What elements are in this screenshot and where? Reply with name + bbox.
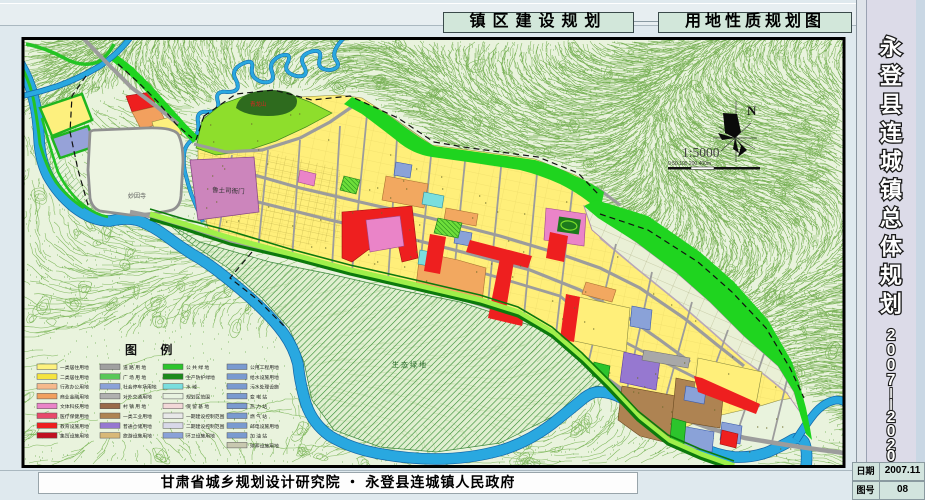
svg-text:妙因寺: 妙因寺 — [128, 192, 146, 200]
svg-text:图 例: 图 例 — [125, 342, 182, 357]
svg-text:热 力 站: 热 力 站 — [250, 403, 267, 410]
svg-text:青龙山: 青龙山 — [250, 100, 267, 108]
svg-text:集贸设施用地: 集贸设施用地 — [60, 433, 89, 440]
svg-text:变 电 站: 变 电 站 — [250, 393, 267, 400]
svg-text:二类居住用地: 二类居住用地 — [60, 374, 89, 381]
svg-text:普通仓储用地: 普通仓储用地 — [123, 423, 152, 430]
svg-text:连: 连 — [880, 121, 903, 146]
svg-text:道 路 用 地: 道 路 用 地 — [123, 364, 146, 371]
svg-text:加 油 站: 加 油 站 — [250, 433, 267, 440]
svg-text:广 场 用 地: 广 场 用 地 — [123, 374, 146, 381]
svg-text:公 共 绿 地: 公 共 绿 地 — [186, 364, 209, 371]
svg-text:0 50 100 200: 0 50 100 200 400m — [668, 161, 711, 167]
svg-text:N: N — [747, 103, 757, 118]
svg-text:殡葬设施用地: 殡葬设施用地 — [250, 442, 279, 449]
svg-text:城: 城 — [880, 149, 902, 174]
svg-text:一期建设控制范围: 一期建设控制范围 — [186, 413, 225, 420]
svg-text:划: 划 — [880, 292, 902, 317]
svg-text:邮电设施用地: 邮电设施用地 — [250, 423, 279, 430]
svg-text:体: 体 — [880, 235, 903, 260]
svg-text:一类工业用地: 一类工业用地 — [123, 413, 152, 420]
svg-text:给水设施用地: 给水设施用地 — [250, 374, 279, 381]
svg-text:商业金融用地: 商业金融用地 — [60, 393, 89, 400]
svg-text:公用工程用地: 公用工程用地 — [250, 364, 279, 371]
svg-text:县: 县 — [880, 92, 902, 117]
svg-text:保 留 基 地: 保 留 基 地 — [186, 403, 209, 410]
svg-text:生态绿地: 生态绿地 — [392, 360, 428, 369]
svg-text:规划区范围: 规划区范围 — [186, 393, 210, 400]
svg-text:社会停车场用地: 社会停车场用地 — [123, 384, 157, 391]
svg-text:0: 0 — [887, 448, 896, 462]
svg-text:二期建设控制范围: 二期建设控制范围 — [186, 423, 225, 430]
svg-text:水 域: 水 域 — [186, 384, 197, 391]
svg-text:生产防护绿地: 生产防护绿地 — [186, 374, 215, 381]
svg-text:文体科技用地: 文体科技用地 — [60, 403, 89, 410]
svg-text:污水处理设施: 污水处理设施 — [250, 384, 279, 391]
svg-text:镇: 镇 — [880, 178, 902, 203]
svg-text:总: 总 — [880, 206, 902, 231]
svg-text:1:5000: 1:5000 — [682, 145, 720, 160]
svg-text:登: 登 — [879, 64, 903, 89]
svg-text:永: 永 — [880, 35, 902, 60]
svg-text:对外交通用地: 对外交通用地 — [123, 393, 152, 400]
svg-text:旅游设施用地: 旅游设施用地 — [123, 433, 152, 440]
svg-text:医疗保健用地: 医疗保健用地 — [60, 413, 89, 420]
svg-text:行政办公用地: 行政办公用地 — [60, 384, 89, 391]
svg-text:村 镇 用 地: 村 镇 用 地 — [123, 403, 146, 410]
svg-text:规: 规 — [880, 263, 902, 288]
svg-text:燃 气 站: 燃 气 站 — [250, 413, 267, 420]
svg-text:环卫设施用地: 环卫设施用地 — [186, 433, 215, 440]
svg-text:一类居住用地: 一类居住用地 — [60, 364, 89, 371]
svg-text:教育设施用地: 教育设施用地 — [60, 423, 89, 430]
